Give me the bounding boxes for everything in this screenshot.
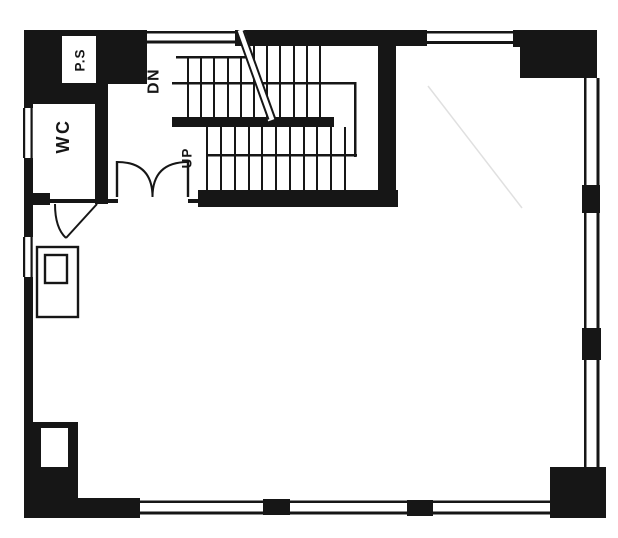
window-bottom-2 (290, 501, 407, 504)
wc-east-wall (95, 83, 108, 204)
stair-center-bar (172, 117, 334, 127)
stair-flight-lower (207, 127, 345, 190)
pipe-shaft-label: P.S (73, 48, 88, 71)
window-top-1 (147, 31, 235, 34)
window-bottom-2 (290, 512, 407, 515)
stair-east-wall (378, 40, 396, 207)
hall-south-wall (108, 199, 118, 203)
window-left-2 (31, 237, 33, 277)
top-wall-center (235, 30, 427, 46)
stair-rail-upper (176, 56, 246, 59)
fixture-basin (45, 255, 67, 283)
door-swing-arc (55, 204, 66, 238)
bottom-wall-pier-2 (407, 500, 433, 516)
window-right-band (584, 78, 587, 467)
stairs-down-label: DN (146, 68, 163, 94)
wc-door (55, 204, 97, 238)
bottom-right-column (550, 467, 606, 518)
window-bottom-3 (433, 512, 550, 515)
stairwell (172, 30, 357, 190)
window-right-band (597, 78, 600, 467)
windows (23, 31, 600, 515)
stair-rail-lower (207, 154, 357, 157)
window-top-1 (147, 41, 235, 44)
stair-rail-mid-upper (172, 82, 356, 85)
window-left-1 (23, 108, 25, 158)
bottom-wall-pier-1 (263, 499, 290, 515)
stair-south-wall (198, 190, 398, 207)
window-bottom-1 (140, 501, 263, 504)
window-left-1 (31, 108, 33, 158)
stairs-up-label: UP (180, 148, 195, 169)
hall-south-wall (188, 199, 198, 203)
door-swing-arc-left (117, 162, 153, 197)
toilet-label: WC (53, 119, 73, 154)
floorplan-sheet: P.S WC DN UP (0, 0, 618, 538)
bottom-left-shaft-opening (41, 428, 68, 467)
window-bottom-3 (433, 501, 550, 504)
top-right-column (520, 34, 597, 78)
stairhall-double-door (117, 161, 188, 197)
stair-landing-edge (354, 82, 357, 157)
door-leaf (66, 204, 97, 238)
window-left-2 (23, 237, 25, 277)
exterior-walls (24, 30, 606, 518)
floorplan-drawing: P.S WC DN UP (0, 0, 618, 538)
window-bottom-1 (140, 512, 263, 515)
counter-fixture (37, 247, 78, 317)
window-top-2 (427, 41, 513, 44)
window-top-2 (427, 31, 513, 34)
wc-south-wall (33, 199, 95, 203)
scan-artifact (428, 86, 522, 208)
